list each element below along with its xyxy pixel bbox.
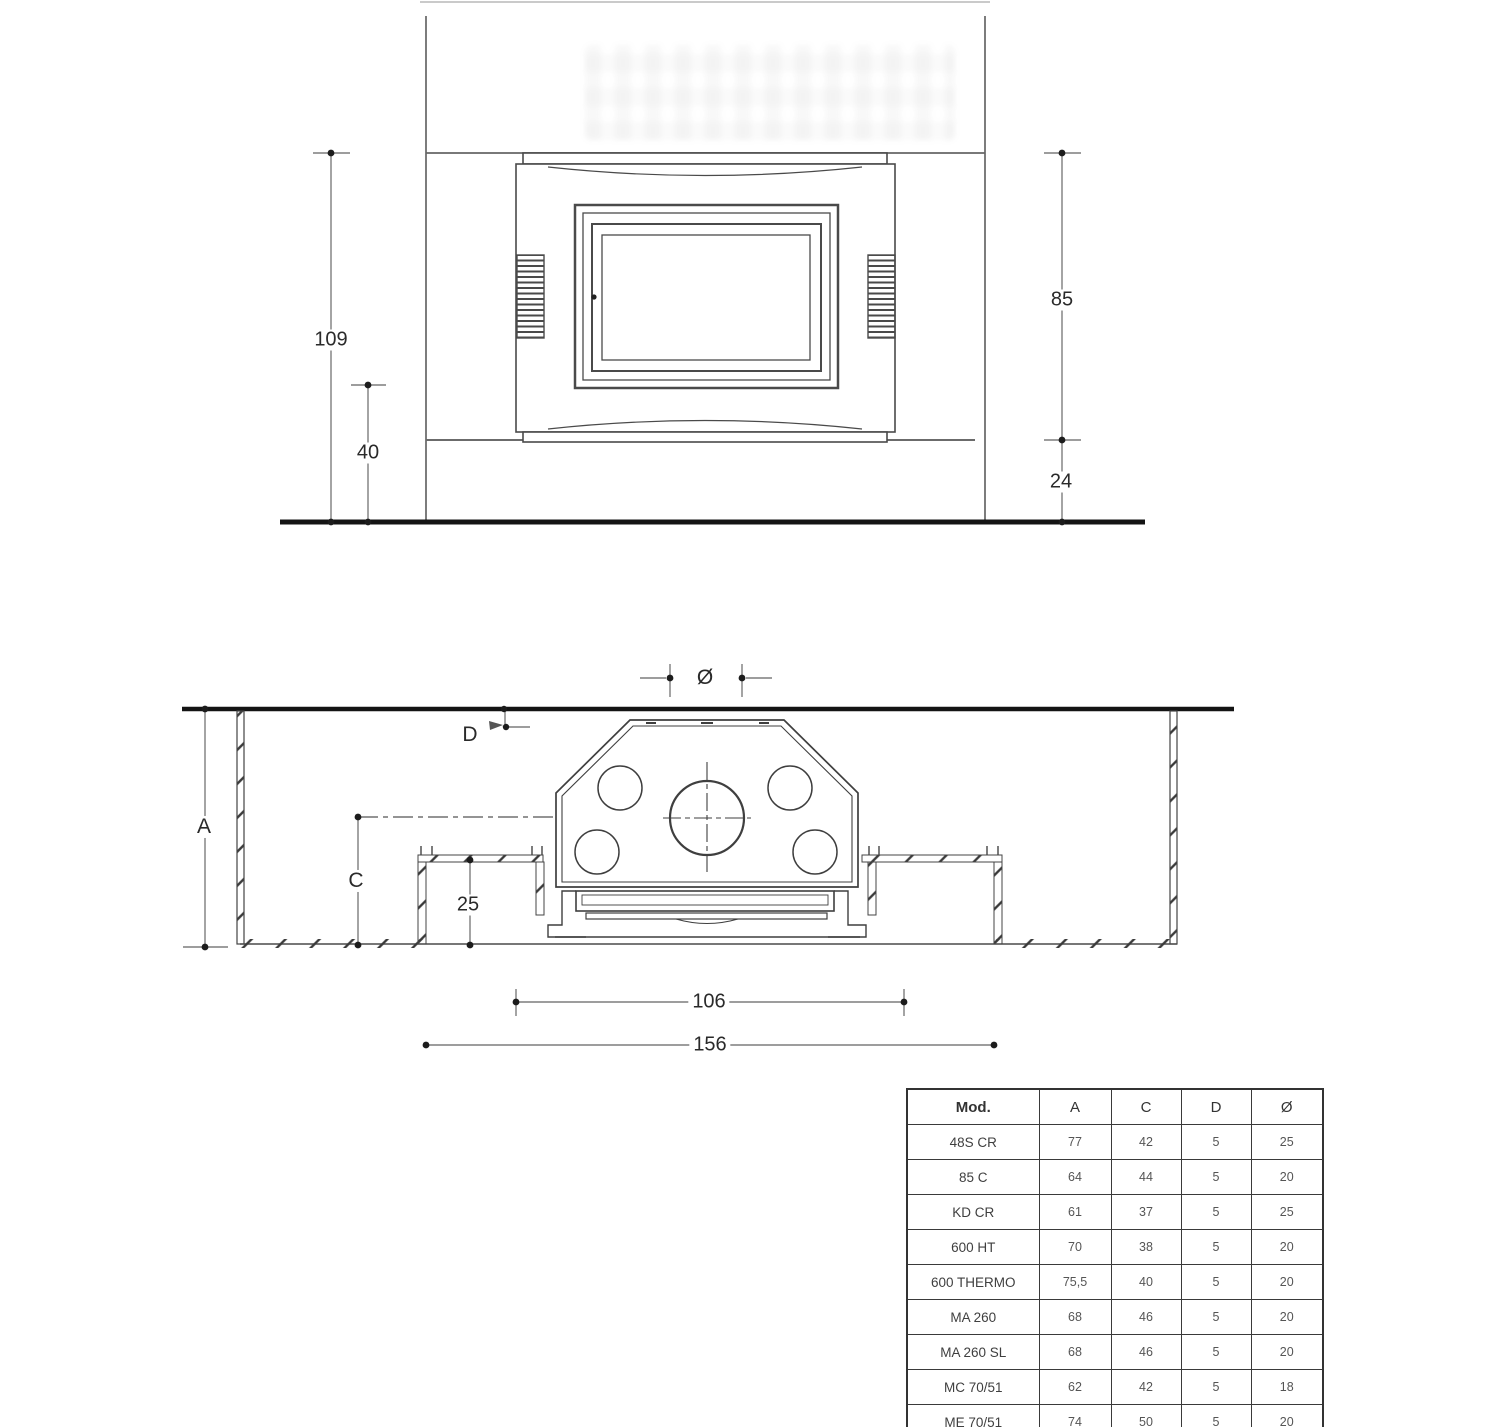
value-diameter: 20 bbox=[1251, 1300, 1323, 1335]
value-a: 75,5 bbox=[1039, 1265, 1111, 1300]
value-c: 46 bbox=[1111, 1335, 1181, 1370]
fireplace-insert-front bbox=[516, 153, 895, 442]
dim-base-height-label: 24 bbox=[1046, 472, 1076, 493]
value-c: 42 bbox=[1111, 1370, 1181, 1405]
model-name: 48S CR bbox=[907, 1125, 1039, 1160]
col-header-a: A bbox=[1039, 1089, 1111, 1125]
model-spec-table: Mod. A C D Ø 48S CR 77 42 5 25 85 C 64 4… bbox=[906, 1088, 1324, 1427]
value-d: 5 bbox=[1181, 1405, 1251, 1427]
model-name: 600 THERMO bbox=[907, 1265, 1039, 1300]
col-header-model: Mod. bbox=[907, 1089, 1039, 1125]
model-name: MA 260 bbox=[907, 1300, 1039, 1335]
dim-total-height-label: 109 bbox=[310, 330, 351, 351]
dim-depth-a-label: A bbox=[193, 816, 215, 838]
value-a: 77 bbox=[1039, 1125, 1111, 1160]
value-c: 42 bbox=[1111, 1125, 1181, 1160]
value-a: 70 bbox=[1039, 1230, 1111, 1265]
dim-flue-diameter-label: Ø bbox=[693, 667, 717, 689]
dim-overall-width-label: 156 bbox=[689, 1035, 730, 1056]
model-name: KD CR bbox=[907, 1195, 1039, 1230]
value-c: 44 bbox=[1111, 1160, 1181, 1195]
value-d: 5 bbox=[1181, 1265, 1251, 1300]
dim-wall-distance-label: D bbox=[458, 724, 481, 746]
dim-insert-height-label: 85 bbox=[1047, 290, 1077, 311]
model-name: 600 HT bbox=[907, 1230, 1039, 1265]
value-diameter: 25 bbox=[1251, 1125, 1323, 1160]
value-a: 74 bbox=[1039, 1405, 1111, 1427]
dim-hearth-height-label: 40 bbox=[353, 443, 383, 464]
stove-body-section bbox=[548, 720, 866, 937]
value-d: 5 bbox=[1181, 1300, 1251, 1335]
value-a: 64 bbox=[1039, 1160, 1111, 1195]
col-header-c: C bbox=[1111, 1089, 1181, 1125]
value-c: 38 bbox=[1111, 1230, 1181, 1265]
col-header-d: D bbox=[1181, 1089, 1251, 1125]
dim-inner-width-label: 106 bbox=[688, 992, 729, 1013]
value-c: 37 bbox=[1111, 1195, 1181, 1230]
value-d: 5 bbox=[1181, 1370, 1251, 1405]
technical-drawing-page: 109 40 85 24 Ø D A C 25 106 156 Mod. A C… bbox=[0, 0, 1500, 1427]
table-row: MA 260 SL 68 46 5 20 bbox=[907, 1335, 1323, 1370]
table-row: KD CR 61 37 5 25 bbox=[907, 1195, 1323, 1230]
value-d: 5 bbox=[1181, 1335, 1251, 1370]
model-name: 85 C bbox=[907, 1160, 1039, 1195]
left-vent-grille bbox=[517, 255, 544, 338]
model-name: MA 260 SL bbox=[907, 1335, 1039, 1370]
value-d: 5 bbox=[1181, 1195, 1251, 1230]
right-vent-grille bbox=[868, 255, 895, 338]
value-c: 46 bbox=[1111, 1300, 1181, 1335]
dim-depth-c-label: C bbox=[344, 870, 367, 892]
door-handle bbox=[591, 294, 596, 299]
table-row: MC 70/51 62 42 5 18 bbox=[907, 1370, 1323, 1405]
front-elevation-view bbox=[280, 2, 1145, 525]
table-row: 600 HT 70 38 5 20 bbox=[907, 1230, 1323, 1265]
spec-table-header-row: Mod. A C D Ø bbox=[907, 1089, 1323, 1125]
value-a: 68 bbox=[1039, 1300, 1111, 1335]
value-c: 50 bbox=[1111, 1405, 1181, 1427]
table-row: 600 THERMO 75,5 40 5 20 bbox=[907, 1265, 1323, 1300]
dim-bench-depth-label: 25 bbox=[453, 895, 483, 916]
table-row: 48S CR 77 42 5 25 bbox=[907, 1125, 1323, 1160]
value-d: 5 bbox=[1181, 1125, 1251, 1160]
value-diameter: 20 bbox=[1251, 1230, 1323, 1265]
value-a: 61 bbox=[1039, 1195, 1111, 1230]
table-row: MA 260 68 46 5 20 bbox=[907, 1300, 1323, 1335]
table-row: 85 C 64 44 5 20 bbox=[907, 1160, 1323, 1195]
table-row: ME 70/51 74 50 5 20 bbox=[907, 1405, 1323, 1427]
value-diameter: 20 bbox=[1251, 1265, 1323, 1300]
model-name: MC 70/51 bbox=[907, 1370, 1039, 1405]
value-diameter: 25 bbox=[1251, 1195, 1323, 1230]
value-a: 68 bbox=[1039, 1335, 1111, 1370]
value-a: 62 bbox=[1039, 1370, 1111, 1405]
model-name: ME 70/51 bbox=[907, 1405, 1039, 1427]
value-d: 5 bbox=[1181, 1160, 1251, 1195]
value-diameter: 20 bbox=[1251, 1160, 1323, 1195]
value-diameter: 20 bbox=[1251, 1405, 1323, 1427]
value-d: 5 bbox=[1181, 1230, 1251, 1265]
col-header-diameter: Ø bbox=[1251, 1089, 1323, 1125]
value-c: 40 bbox=[1111, 1265, 1181, 1300]
value-diameter: 20 bbox=[1251, 1335, 1323, 1370]
value-diameter: 18 bbox=[1251, 1370, 1323, 1405]
